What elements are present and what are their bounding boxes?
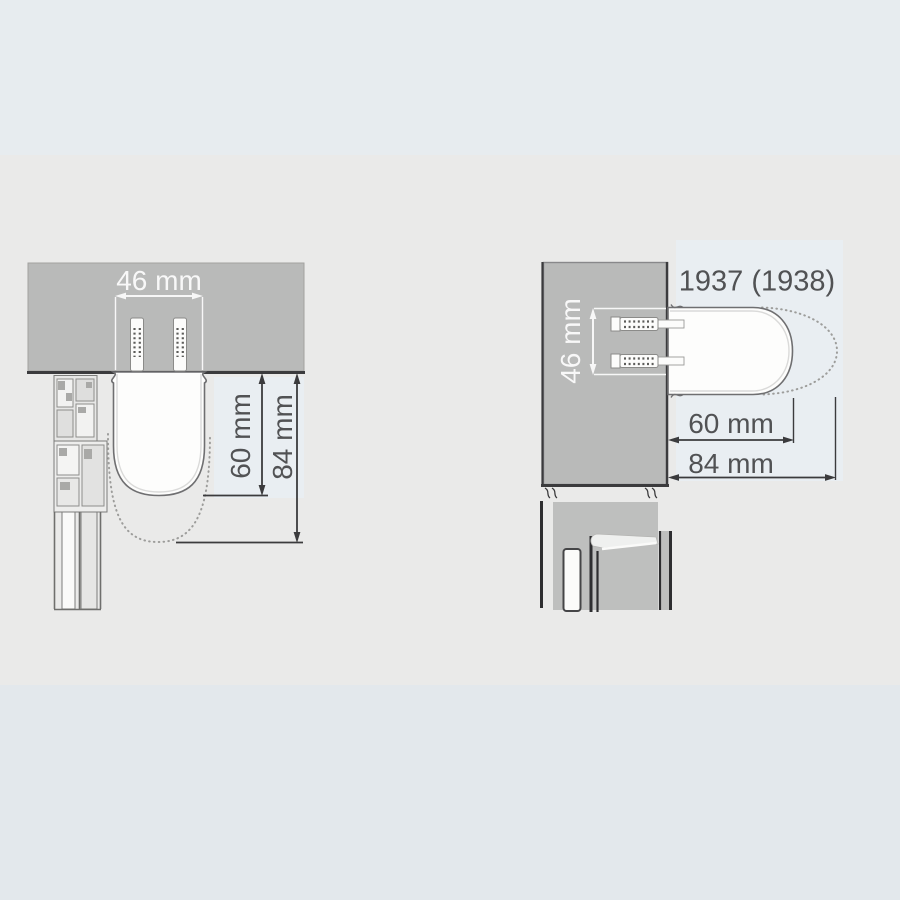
- front-view-depth-60-label: 60 mm: [227, 393, 255, 479]
- plan-view-projection-84-label: 84 mm: [688, 450, 774, 478]
- frame-profile-section: [54, 376, 107, 610]
- catalog-dimension-diagram: 46 mm 60 mm 84 mm 1937 (1938) 46 mm 60 m…: [0, 0, 900, 900]
- front-view-depth-84-label: 84 mm: [269, 394, 297, 480]
- break-mark-wall-left: [545, 488, 557, 498]
- fixing-screw-left: [131, 318, 144, 371]
- door-leaf-plan: [542, 501, 671, 612]
- model-number-label: 1937 (1938): [679, 268, 835, 297]
- break-mark-wall-right: [645, 488, 657, 498]
- break-mark-handle-bottom: [671, 395, 683, 398]
- break-mark-handle-top: [671, 305, 683, 308]
- door-slot: [564, 549, 581, 611]
- plan-view-spacing-label: 46 mm: [557, 298, 585, 384]
- pull-handle-plan: [668, 308, 793, 395]
- front-view-width-label: 46 mm: [116, 267, 202, 295]
- fixing-screw-right: [174, 318, 187, 371]
- plan-view-projection-60-label: 60 mm: [688, 410, 774, 438]
- pull-handle-front: [112, 372, 206, 496]
- front-view: [27, 263, 305, 610]
